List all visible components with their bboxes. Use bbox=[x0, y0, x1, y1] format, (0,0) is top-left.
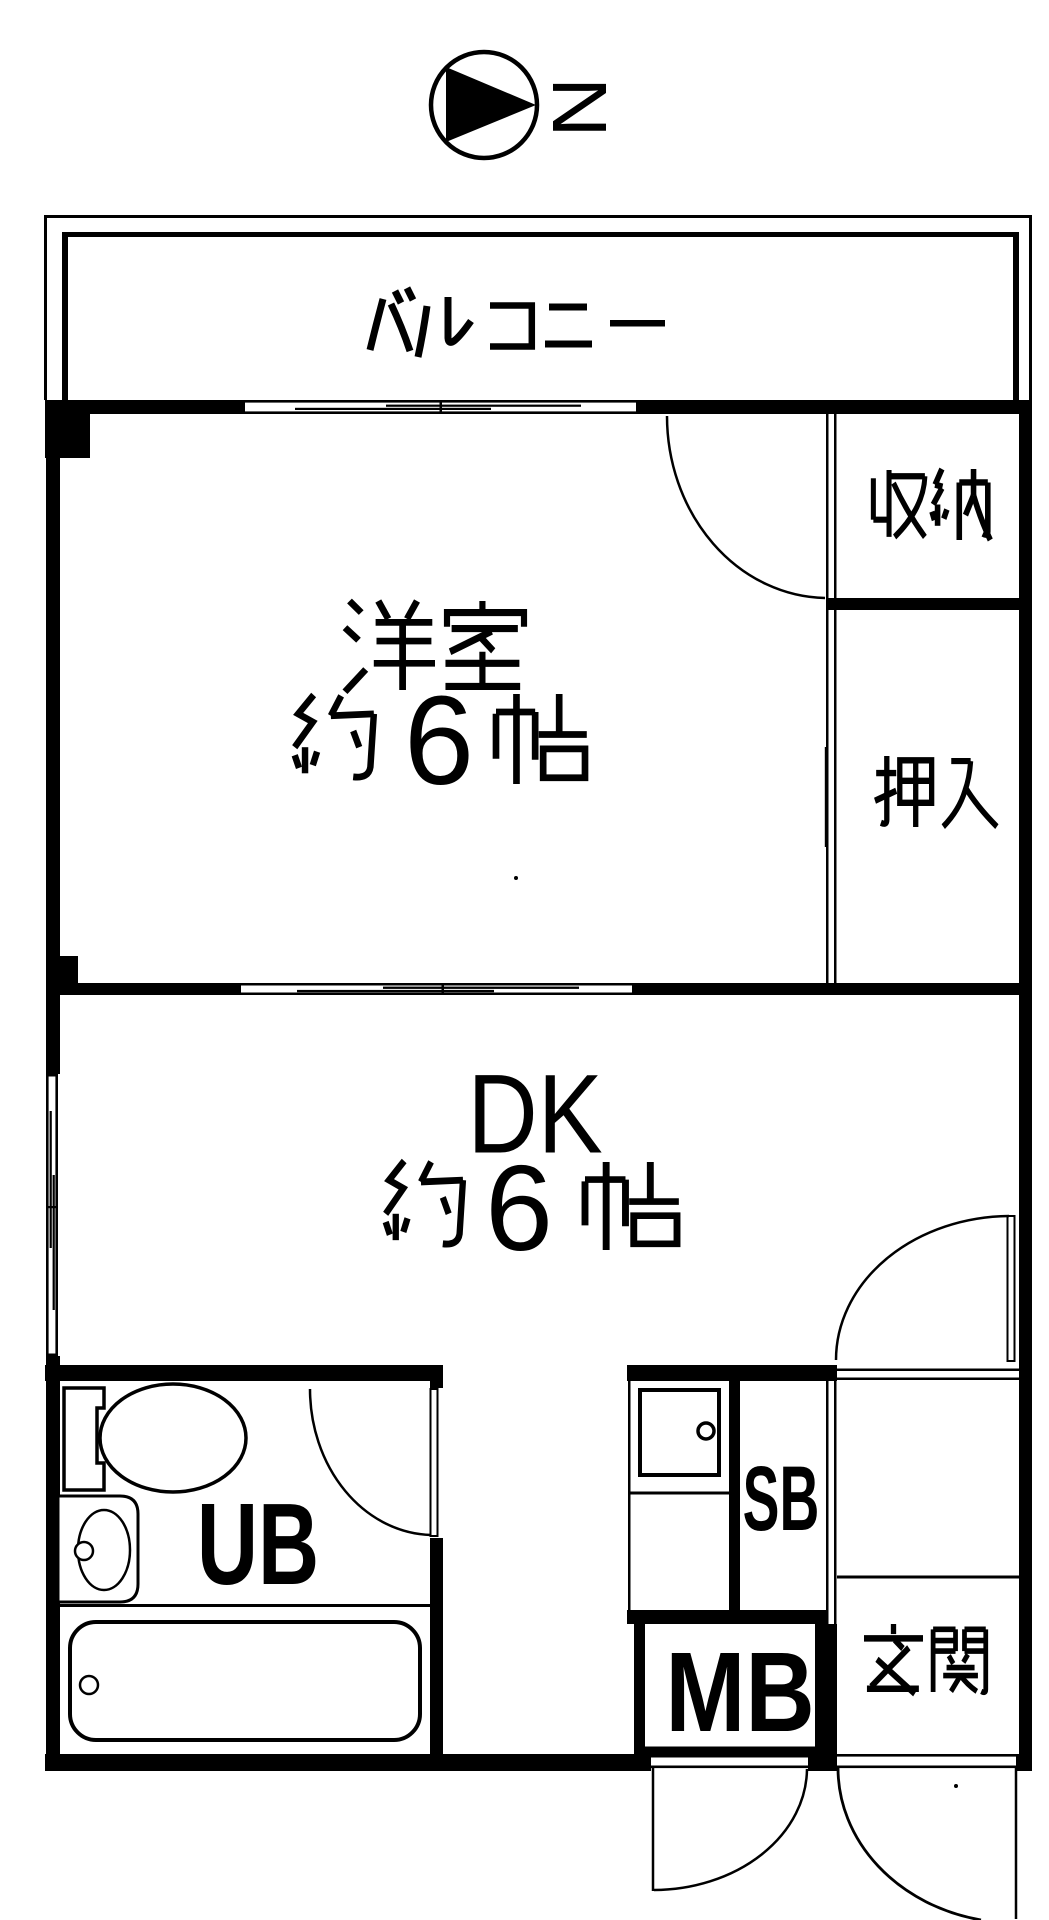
svg-text:6: 6 bbox=[404, 670, 474, 811]
svg-text:SB: SB bbox=[743, 1448, 820, 1551]
svg-text:UB: UB bbox=[197, 1479, 319, 1609]
svg-text:N: N bbox=[536, 77, 622, 138]
svg-text:MB: MB bbox=[665, 1630, 814, 1756]
svg-text:6: 6 bbox=[485, 1140, 553, 1276]
